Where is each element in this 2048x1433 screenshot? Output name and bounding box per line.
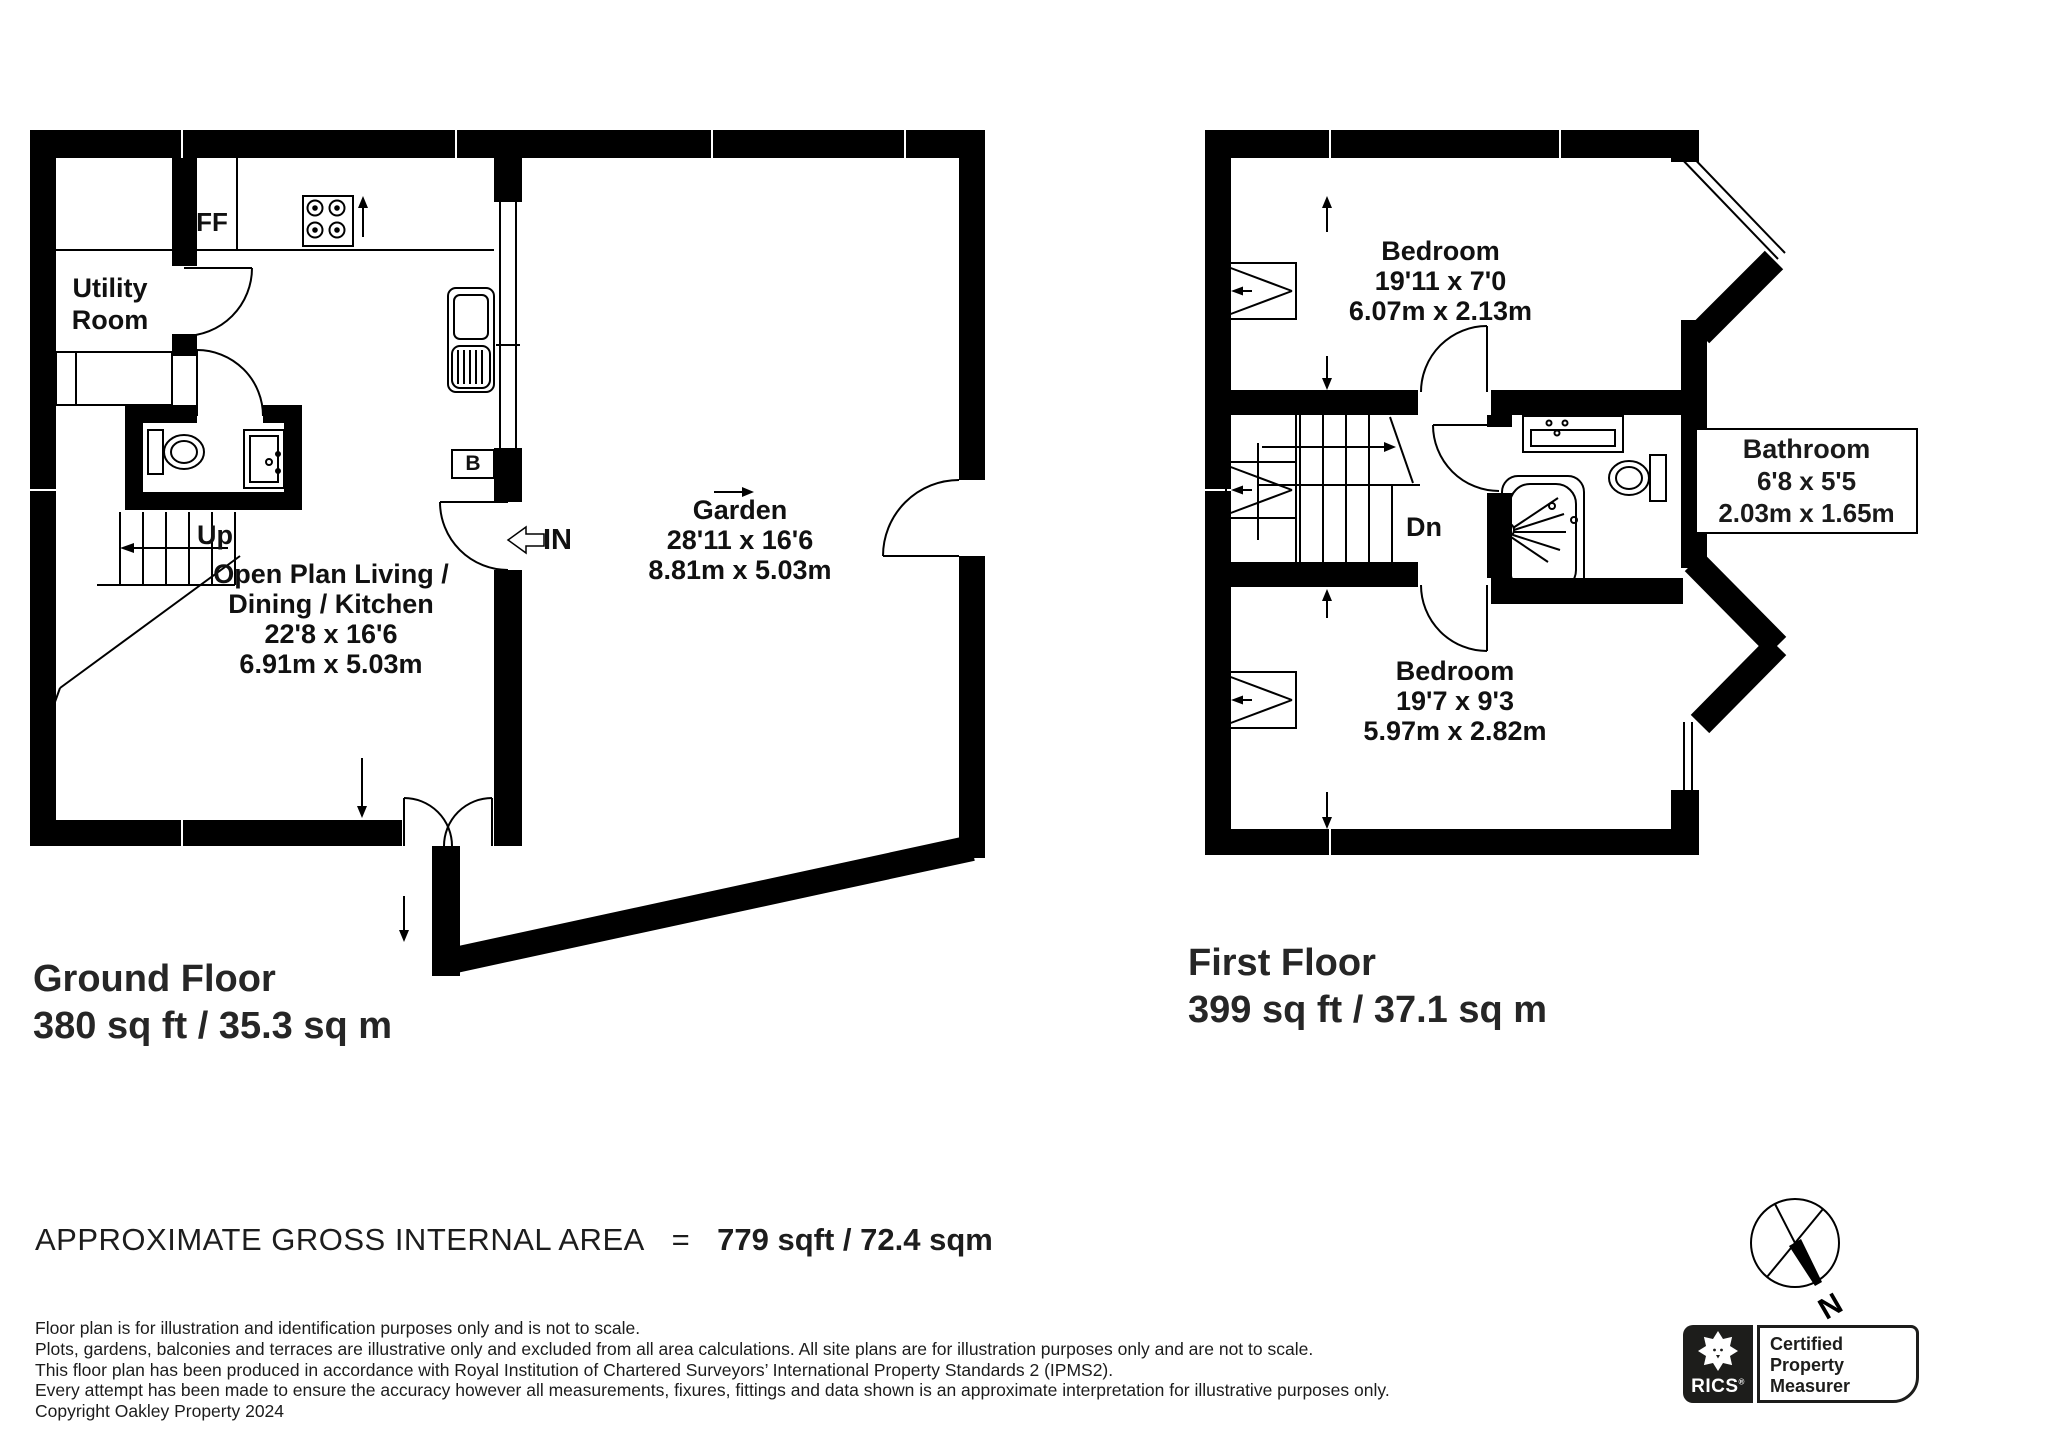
disclaimer-line: Every attempt has been made to ensure th… <box>35 1380 1390 1401</box>
bedroom-top-label: Bedroom 19'11 x 7'0 6.07m x 2.13m <box>1318 236 1563 326</box>
stairs-icon <box>1258 415 1420 562</box>
bedroom-bottom-label: Bedroom 19'7 x 9'3 5.97m x 2.82m <box>1330 656 1580 746</box>
rics-brand: RICS® <box>1683 1376 1753 1398</box>
ground-floor-title: Ground Floor 380 sq ft / 35.3 sq m <box>33 956 392 1050</box>
rics-lion-icon <box>1696 1329 1740 1373</box>
disclaimer-line: This floor plan has been produced in acc… <box>35 1360 1390 1381</box>
utility-room-label: Utility Room <box>50 272 170 336</box>
bathroom-sink-icon <box>1523 416 1623 452</box>
disclaimer-line: Floor plan is for illustration and ident… <box>35 1318 1390 1339</box>
first-floor-title: First Floor 399 sq ft / 37.1 sq m <box>1188 940 1547 1034</box>
stairs-up-label: Up <box>192 520 238 550</box>
measure-arrows <box>1231 196 1332 829</box>
disclaimer-line: Plots, gardens, balconies and terraces a… <box>35 1339 1390 1360</box>
toilet-icon <box>148 430 204 474</box>
gross-internal-area: APPROXIMATE GROSS INTERNAL AREA = 779 sq… <box>35 1222 993 1258</box>
garden-label: Garden 28'11 x 16'6 8.81m x 5.03m <box>612 495 868 585</box>
toilet-icon <box>1609 455 1666 501</box>
stairs-down-label: Dn <box>1406 512 1460 542</box>
disclaimer-line: Copyright Oakley Property 2024 <box>35 1401 1390 1422</box>
compass-north-label: N <box>1812 1286 1847 1325</box>
compass-icon: N <box>1751 1199 1847 1325</box>
door-arcs <box>1421 326 1499 651</box>
bathroom-fixtures <box>1500 416 1666 598</box>
wardrobe-icons <box>1226 263 1296 728</box>
kitchen-window <box>496 202 520 448</box>
entrance-arrow-icon <box>508 527 544 553</box>
boiler-label: B <box>452 450 494 478</box>
floorplan-page: N Utility Room FF Up B IN Open Plan Livi… <box>0 0 2048 1433</box>
sink-icon <box>448 288 494 392</box>
floorplan-drawing: N <box>0 0 2048 1433</box>
rics-logo: RICS® <box>1683 1325 1753 1403</box>
open-plan-room-label: Open Plan Living / Dining / Kitchen 22'8… <box>200 559 462 679</box>
certified-property-measurer-badge: Certified Property Measurer <box>1757 1325 1919 1403</box>
entrance-in-label: IN <box>543 524 593 556</box>
basin-icon <box>244 430 284 488</box>
hob-icon <box>303 196 353 246</box>
disclaimer: Floor plan is for illustration and ident… <box>35 1318 1390 1422</box>
wc-fixtures <box>148 430 284 488</box>
bathroom-callout: Bathroom 6'8 x 5'5 2.03m x 1.65m <box>1695 428 1918 534</box>
fridge-freezer-label: FF <box>190 208 234 237</box>
